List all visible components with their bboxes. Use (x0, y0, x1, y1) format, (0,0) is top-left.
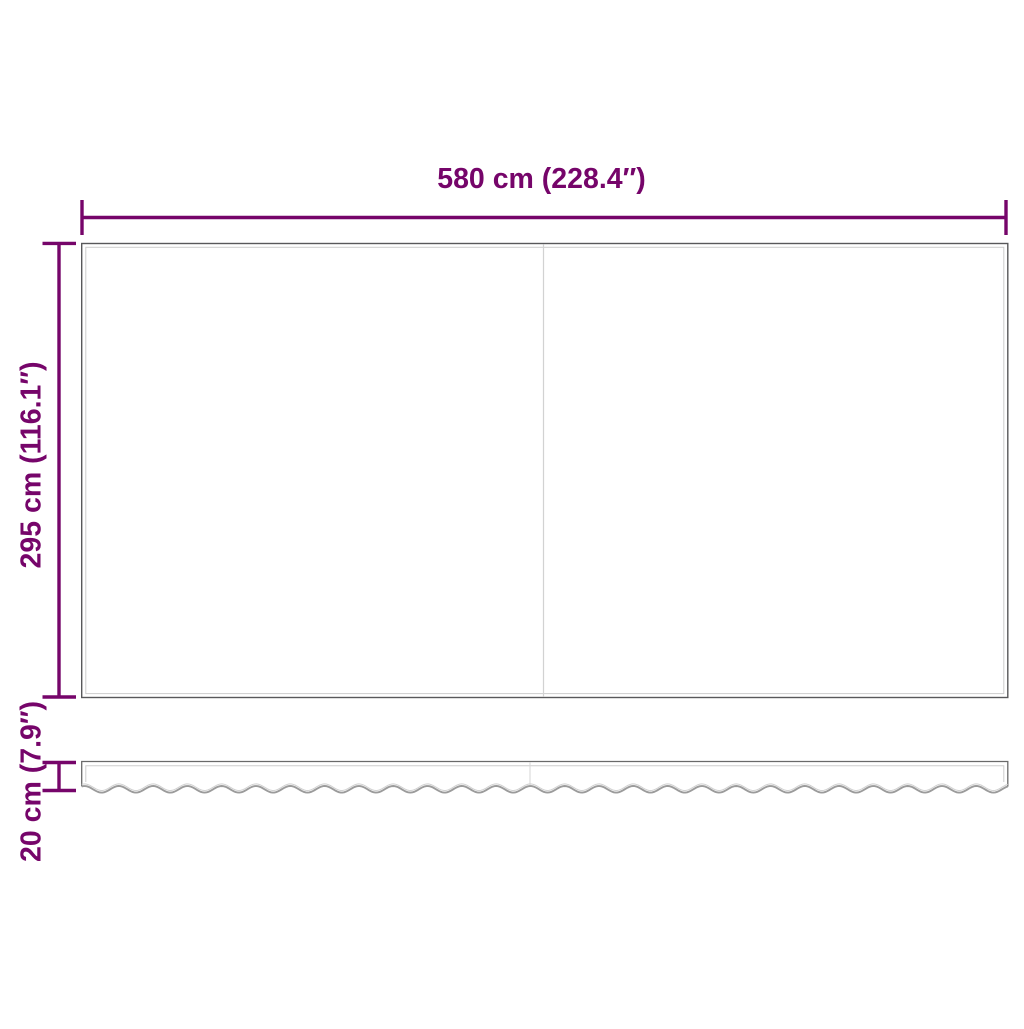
svg-text:295 cm (116.1″): 295 cm (116.1″) (16, 362, 48, 569)
svg-text:20 cm (7.9″): 20 cm (7.9″) (16, 701, 48, 862)
svg-text:580 cm (228.4″): 580 cm (228.4″) (437, 163, 646, 195)
